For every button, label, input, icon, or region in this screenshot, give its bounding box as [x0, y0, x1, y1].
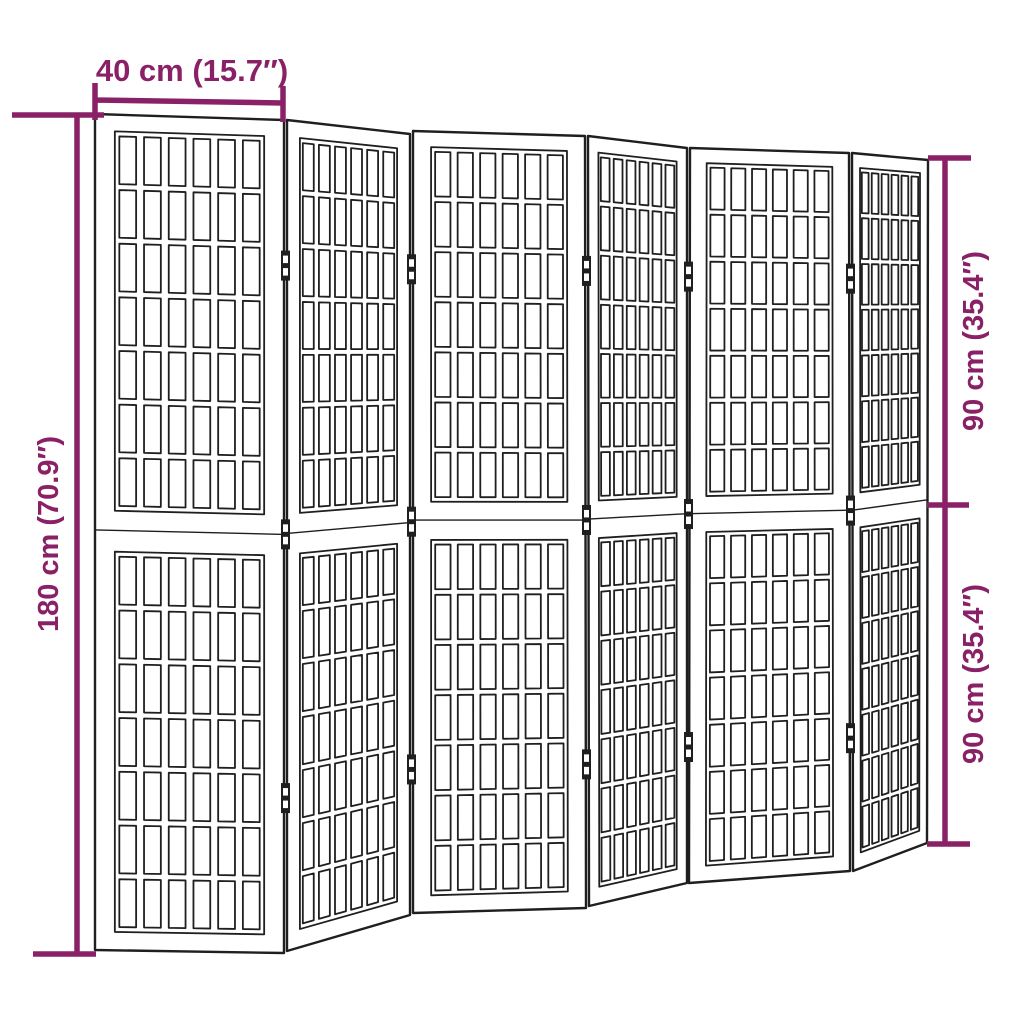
hinge	[407, 754, 416, 784]
hinge-body	[684, 732, 693, 762]
divider-panel-6	[852, 153, 928, 871]
hinge-slot	[686, 517, 691, 525]
hinge-body	[846, 264, 855, 294]
hinge-slot	[584, 510, 589, 518]
hinge-body	[281, 251, 290, 281]
divider-panels	[95, 114, 928, 953]
divider-panel-4	[588, 136, 687, 906]
divider-panel-1	[95, 114, 284, 953]
hinge-slot	[584, 273, 589, 281]
upper-half-height-label: 90 cm (35.4″)	[958, 251, 990, 431]
product-dimension-diagram: 40 cm (15.7″) 180 cm (70.9″) 90 cm (35.4…	[0, 0, 1024, 1024]
hinge-body	[281, 519, 290, 549]
hinge	[407, 254, 416, 284]
hinge	[281, 783, 290, 813]
hinge	[846, 496, 855, 526]
divider-panel-2	[287, 120, 410, 951]
hinge-body	[582, 749, 591, 779]
hinge-slot	[409, 272, 414, 280]
hinge-body	[684, 499, 693, 529]
hinge-slot	[283, 788, 288, 796]
hinge	[846, 264, 855, 294]
hinge-slot	[409, 759, 414, 767]
hinge	[407, 507, 416, 537]
hinge-slot	[686, 267, 691, 275]
hinge-body	[407, 507, 416, 537]
hinge-slot	[584, 261, 589, 269]
lower-half-height-label: 90 cm (35.4″)	[958, 584, 990, 764]
hinge	[281, 519, 290, 549]
divider-panel-5	[689, 148, 850, 883]
hinge-slot	[283, 537, 288, 545]
height-label: 180 cm (70.9″)	[33, 436, 65, 632]
hinge	[281, 251, 290, 281]
hinge-body	[407, 754, 416, 784]
hinge	[582, 749, 591, 779]
hinge-slot	[848, 513, 853, 521]
hinge-slot	[686, 750, 691, 758]
hinge-slot	[409, 259, 414, 267]
hinge-slot	[283, 524, 288, 532]
hinge-slot	[584, 522, 589, 530]
hinge-slot	[686, 737, 691, 745]
hinge-slot	[409, 524, 414, 532]
hinge-slot	[848, 269, 853, 277]
hinge-slot	[409, 772, 414, 780]
hinge-slot	[283, 268, 288, 276]
hinge-body	[846, 723, 855, 753]
hinge-body	[582, 256, 591, 286]
hinge-slot	[848, 501, 853, 509]
hinge	[582, 505, 591, 535]
hinge	[684, 732, 693, 762]
hinge-slot	[584, 767, 589, 775]
hinge	[582, 256, 591, 286]
hinge	[684, 262, 693, 292]
hinge-slot	[409, 512, 414, 520]
hinge-slot	[283, 801, 288, 809]
hinge	[684, 499, 693, 529]
hinge-body	[281, 783, 290, 813]
room-divider-diagram: 40 cm (15.7″) 180 cm (70.9″) 90 cm (35.4…	[0, 0, 1024, 1024]
hinge-body	[846, 496, 855, 526]
hinge-slot	[686, 279, 691, 287]
hinge	[846, 723, 855, 753]
hinge-body	[684, 262, 693, 292]
hinge-body	[407, 254, 416, 284]
hinge-slot	[686, 504, 691, 512]
hinge-slot	[848, 728, 853, 736]
hinge-slot	[848, 741, 853, 749]
divider-panel-3	[413, 131, 586, 913]
hinge-slot	[283, 256, 288, 264]
hinge-slot	[584, 754, 589, 762]
hinge-body	[582, 505, 591, 535]
hinge-slot	[848, 281, 853, 289]
width-label: 40 cm (15.7″)	[96, 53, 288, 88]
